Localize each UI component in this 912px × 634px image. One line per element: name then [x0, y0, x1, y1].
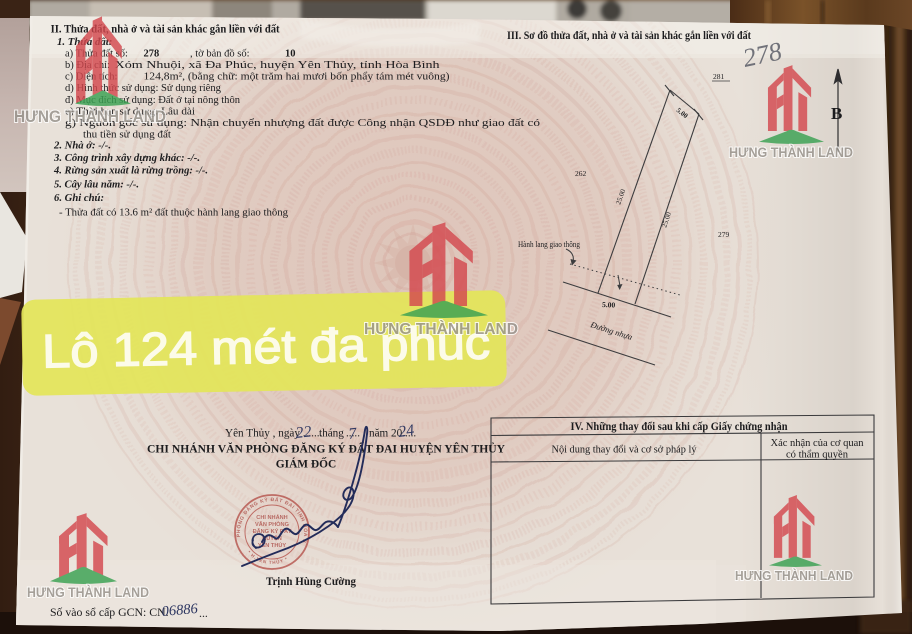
svg-text:5. Cây lâu năm: -/-.: 5. Cây lâu năm: -/-. — [54, 179, 139, 191]
svg-text:II. Thửa đất, nhà ở và tài sản: II. Thửa đất, nhà ở và tài sản khác gắn … — [51, 22, 280, 36]
svg-text:có thẩm quyền: có thẩm quyền — [786, 450, 849, 461]
svg-text:VĂN PHÒNG: VĂN PHÒNG — [255, 520, 289, 528]
svg-text:CHI NHÁNH VĂN PHÒNG ĐĂNG KÝ ĐẤ: CHI NHÁNH VĂN PHÒNG ĐĂNG KÝ ĐẤT ĐAI HUYỆ… — [147, 443, 506, 456]
svg-text:4. Rừng sản xuất là rừng trồng: 4. Rừng sản xuất là rừng trồng: -/-. — [53, 165, 208, 177]
svg-text:B: B — [831, 104, 842, 123]
svg-text:HƯNG THÀNH LAND: HƯNG THÀNH LAND — [27, 585, 149, 600]
svg-text:HƯNG THÀNH LAND: HƯNG THÀNH LAND — [14, 107, 166, 126]
svg-text:Xác nhận của cơ quan: Xác nhận của cơ quan — [771, 438, 865, 449]
svg-text:HƯNG THÀNH LAND: HƯNG THÀNH LAND — [735, 568, 853, 583]
svg-text:HƯNG THÀNH LAND: HƯNG THÀNH LAND — [729, 145, 853, 160]
svg-text:...: ... — [199, 606, 208, 620]
svg-text:24: 24 — [397, 422, 415, 441]
svg-text:Số vào sổ cấp GCN: CN.: Số vào sổ cấp GCN: CN. — [50, 605, 169, 619]
svg-text:5.00: 5.00 — [602, 300, 616, 309]
svg-text:- Thửa đất có 13.6 m² đất thuộ: - Thửa đất có 13.6 m² đất thuộc hành lan… — [59, 208, 289, 219]
svg-text:06886: 06886 — [161, 601, 199, 620]
svg-text:b) Địa chỉ: Xóm Nhuội, xã Đa: b) Địa chỉ: Xóm Nhuội, xã Đa Phúc, huyện… — [65, 60, 441, 71]
svg-text:281: 281 — [713, 72, 725, 81]
svg-text:HƯNG THÀNH LAND: HƯNG THÀNH LAND — [364, 321, 518, 338]
svg-text:Trịnh Hùng Cường: Trịnh Hùng Cường — [266, 575, 356, 588]
svg-text:Hành lang giao thông: Hành lang giao thông — [518, 240, 580, 249]
svg-text:Yên Thủy , ngày ....... tháng.: Yên Thủy , ngày ....... tháng.....năm 20… — [225, 428, 416, 440]
svg-text:III. Sơ đồ thửa đất, nhà ở và: III. Sơ đồ thửa đất, nhà ở và tài sản kh… — [507, 30, 751, 42]
svg-text:6. Ghi chú:: 6. Ghi chú: — [54, 192, 104, 204]
svg-text:262: 262 — [575, 169, 587, 178]
svg-text:IV. Những thay đổi sau khi cấp: IV. Những thay đổi sau khi cấp Giấy chứn… — [571, 421, 789, 433]
svg-text:Nội dung thay đổi và cơ sở phá: Nội dung thay đổi và cơ sở pháp lý — [552, 444, 698, 456]
svg-text:CHI NHÁNH: CHI NHÁNH — [256, 514, 287, 521]
svg-text:3. Công trình xây dựng khác: -: 3. Công trình xây dựng khác: -/-. — [53, 152, 200, 164]
svg-text:279: 279 — [718, 230, 730, 239]
svg-text:2. Nhà ở: -/-.: 2. Nhà ở: -/-. — [53, 140, 111, 152]
svg-text:GIÁM ĐỐC: GIÁM ĐỐC — [276, 458, 336, 471]
svg-text:22: 22 — [295, 423, 313, 442]
svg-text:d) Hình thức sử dụng: Sử dụn: d) Hình thức sử dụng: Sử dụng riêng — [65, 83, 222, 94]
